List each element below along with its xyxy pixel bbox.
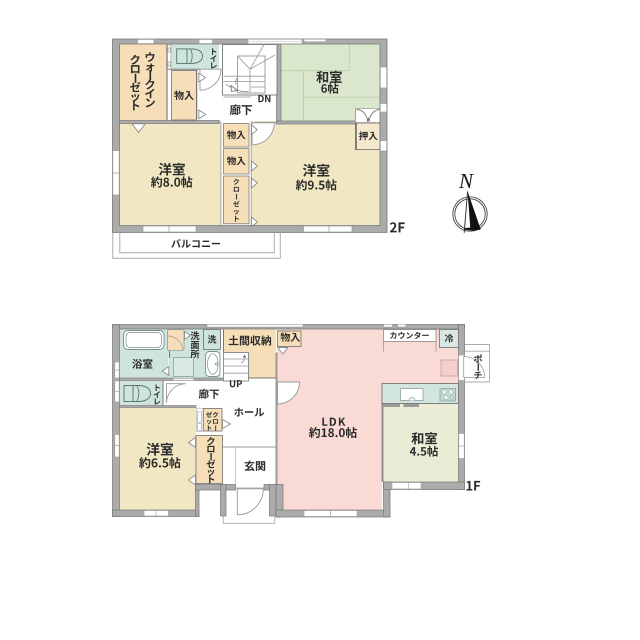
svg-text:N: N [458,169,474,193]
